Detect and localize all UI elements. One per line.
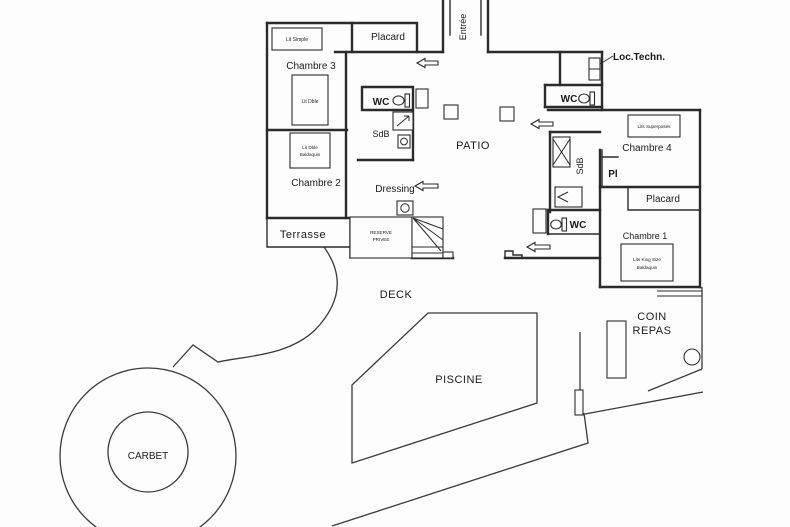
lit-simple-label: Lit Simple [286, 37, 308, 43]
loc-techn-label: Loc.Techn. [613, 52, 665, 63]
floor-plan-drawing: Chambre 3 Chambre 2 Chambre 4 Chambre 1 … [0, 0, 790, 527]
bench [585, 369, 703, 414]
terrasse-label: Terrasse [280, 229, 326, 241]
arrow-left-icon [417, 59, 438, 68]
sdb-right-label: SdB [575, 157, 585, 174]
lit-dble-label: Lit Dble [302, 99, 319, 105]
carbet-label: CARBET [128, 451, 169, 462]
toilet-icon [393, 94, 410, 107]
right-bathroom [533, 137, 582, 233]
lit-dble-baldaquin-label-1: Lit Dble [302, 145, 318, 150]
reserve-label-1: RESERVE [370, 230, 392, 235]
column-post [500, 107, 514, 121]
stairs [412, 217, 453, 258]
door-icon [416, 89, 428, 108]
bathtub-icon [553, 137, 570, 167]
center-bathroom [358, 87, 428, 160]
piscine-outline [352, 313, 537, 463]
chambre2-label: Chambre 2 [291, 178, 341, 189]
coin-repas-label-1: COIN [637, 311, 667, 323]
patio-label: PATIO [456, 140, 490, 152]
deck-gate [575, 390, 583, 415]
dressing-label: Dressing [375, 184, 414, 195]
dressing-zone [350, 201, 453, 258]
reserve-label-2: PRIVEE [373, 237, 390, 242]
wc-center-label: WC [373, 97, 390, 108]
column-post [444, 105, 458, 119]
water-heater-icon [397, 201, 413, 215]
lit-dble-baldaquin-label-2: Baldaquin [300, 152, 321, 157]
arrow-left-icon [531, 120, 553, 129]
sdb-center-label: SdB [372, 129, 389, 139]
bed-lit-dble-baldaquin [290, 133, 330, 168]
carbet-outer-circle [60, 368, 236, 527]
arrow-left-icon [527, 243, 550, 252]
wc-top-right-label: WC [561, 94, 578, 105]
chambre4-label: Chambre 4 [622, 143, 672, 154]
pl-label: Pl [608, 169, 618, 180]
coin-repas-step [657, 291, 702, 296]
round-stool [684, 349, 700, 365]
sink-icon [398, 135, 410, 148]
dining-table [607, 321, 626, 378]
lits-king-label-2: Baldaquin [637, 265, 658, 270]
coin-repas-label-2: REPAS [633, 325, 672, 337]
piscine-label: PISCINE [435, 374, 483, 386]
arrow-left-icon [415, 182, 438, 191]
floor-plan-page: Chambre 3 Chambre 2 Chambre 4 Chambre 1 … [0, 0, 790, 527]
deck-label: DECK [380, 289, 413, 301]
toilet-icon [551, 218, 567, 231]
toilet-icon [579, 92, 595, 105]
loc-techn-zone [579, 56, 613, 105]
lits-king-label-1: Lits King Size [633, 257, 661, 262]
placard-right-label: Placard [646, 194, 680, 205]
wc-bottom-right-label: WC [570, 220, 587, 231]
deck-curve-boundary [173, 247, 337, 367]
chambre1-label: Chambre 1 [623, 231, 668, 241]
placard-top-label: Placard [371, 32, 405, 43]
bed-lits-king [621, 244, 673, 281]
deck-south-boundary [332, 413, 588, 526]
entree-label: Entrée [458, 14, 468, 41]
chambre3-label: Chambre 3 [286, 61, 336, 72]
lits-superposes-label: Lits Superposés [638, 124, 672, 129]
hall-cabinet [533, 209, 546, 233]
